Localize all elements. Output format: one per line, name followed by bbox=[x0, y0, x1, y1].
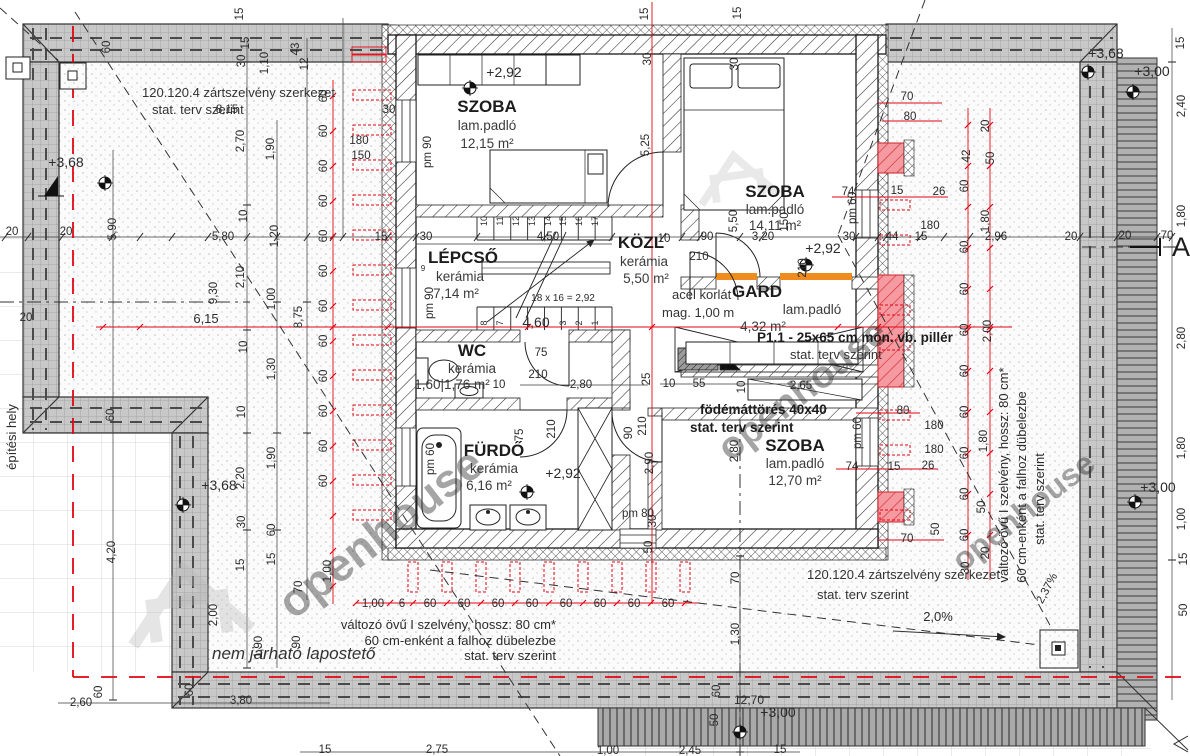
dim-label: 60 bbox=[318, 90, 330, 103]
dim-label: 60 bbox=[628, 598, 641, 610]
dim-label: 210 bbox=[546, 419, 558, 438]
dim-label: 60 bbox=[560, 598, 573, 610]
dim-label: 15 bbox=[558, 216, 568, 226]
dim-label: 10 bbox=[658, 233, 671, 245]
dim-label: 80 bbox=[904, 111, 917, 123]
dim-label: 60 bbox=[105, 409, 117, 422]
dim-label: 150 bbox=[351, 150, 370, 162]
dim-label: 60 bbox=[318, 265, 330, 278]
dim-label: 15 bbox=[891, 185, 904, 197]
pillar-top bbox=[878, 143, 904, 173]
dim-label: 20 bbox=[1119, 230, 1132, 242]
dim-label: 2,00 bbox=[208, 604, 220, 626]
dim-label: 3,20 bbox=[752, 231, 774, 243]
dim-label: 15 bbox=[732, 7, 744, 20]
section-box bbox=[6, 57, 30, 79]
dim-label: 1,80 bbox=[978, 430, 990, 452]
dim-label: 15 bbox=[1178, 553, 1190, 566]
dim-label: 60 bbox=[959, 365, 971, 378]
dim-label: 80 bbox=[897, 405, 910, 417]
dim-label: 180 bbox=[924, 444, 943, 456]
channel-strip-bottom bbox=[598, 708, 1145, 746]
note-slab-opening-2: stat. terv szerint bbox=[690, 420, 794, 435]
room-name-wc: WC bbox=[458, 341, 486, 360]
dim-label: 5,50 bbox=[728, 210, 740, 232]
dim-label: 60 bbox=[318, 475, 330, 488]
dim-label: 60 bbox=[184, 684, 196, 697]
dim-label: 3,80 bbox=[230, 695, 252, 707]
dim-label: 9,30 bbox=[208, 282, 220, 304]
dim-label: 1,00 bbox=[362, 598, 384, 610]
room-area-furdo: 6,16 m² bbox=[466, 478, 512, 493]
room-floor-gard: lam.padló bbox=[783, 302, 842, 317]
dim-label: 30 bbox=[236, 55, 248, 68]
dim-label: +2,92 bbox=[805, 240, 841, 256]
dim-label: 70 bbox=[1161, 230, 1174, 242]
tile-strip-left bbox=[0, 230, 23, 433]
gravel-strip-right bbox=[1117, 58, 1157, 720]
dim-label: 18 x 16 = 2,92 bbox=[531, 293, 595, 304]
dim-label: 8,75 bbox=[293, 306, 305, 328]
dim-label: 10 bbox=[736, 381, 748, 394]
dim-label: 10 bbox=[663, 378, 676, 390]
note-pillar-2: stat. terv szerint bbox=[790, 347, 882, 362]
dim-label: 60 bbox=[959, 241, 971, 254]
dim-label: 60 bbox=[318, 440, 330, 453]
dim-label: 42 bbox=[961, 150, 973, 163]
dim-label: 30 bbox=[960, 562, 972, 575]
dim-label: 1,00 bbox=[266, 288, 278, 310]
dim-label: 2,65 bbox=[790, 380, 812, 392]
dim-label: 60 bbox=[959, 447, 971, 460]
dim-label: 2,45 bbox=[679, 745, 701, 756]
dim-label: 50 bbox=[985, 152, 997, 165]
room-area-kozl: 5,50 m² bbox=[623, 271, 669, 286]
dim-label: 75 bbox=[514, 429, 526, 442]
dim-label: 5,90 bbox=[107, 218, 119, 240]
dim-label: 90 bbox=[291, 636, 303, 649]
dim-label: 11 bbox=[495, 216, 505, 225]
note-isection-right-2: 60 cm-enként a falhoz dübelezbe bbox=[1014, 391, 1029, 583]
dim-label: 210 bbox=[689, 251, 708, 263]
dim-label: 7 bbox=[495, 320, 505, 325]
dim-label: 60 bbox=[662, 598, 675, 610]
dim-label: 20 bbox=[980, 120, 992, 133]
room-name-lepcso: LÉPCSŐ bbox=[428, 248, 498, 267]
dim-label: 60 bbox=[424, 598, 437, 610]
dim-label: 30 bbox=[420, 231, 433, 243]
dim-label: 1,30 bbox=[730, 623, 742, 645]
dim-label: 60 bbox=[594, 598, 607, 610]
dim-label: 90 bbox=[623, 427, 635, 440]
dim-label: 1,80 bbox=[1176, 205, 1188, 227]
room-name-szoba1: SZOBA bbox=[457, 97, 517, 116]
dim-label: 3 bbox=[558, 320, 568, 325]
dim-label: 60 bbox=[318, 335, 330, 348]
dim-label: 4,50 bbox=[537, 231, 559, 243]
dim-label: 2,00 bbox=[982, 320, 994, 342]
dim-label: 60 bbox=[318, 160, 330, 173]
dim-label: 2 bbox=[574, 320, 584, 325]
room-floor-wc: kerámia bbox=[448, 361, 497, 376]
dim-label: 180 bbox=[349, 135, 368, 147]
dim-label: 2,70 bbox=[235, 130, 247, 152]
dim-label: 20 bbox=[20, 312, 33, 324]
dim-label: 180 bbox=[924, 420, 943, 432]
room-name-gard: GARD bbox=[732, 282, 782, 301]
dim-label: 43 bbox=[290, 43, 302, 56]
note-isection-bottom-1: változó övű I szelvény, hossz: 80 cm* bbox=[341, 617, 556, 632]
room-name-szoba3: SZOBA bbox=[765, 436, 825, 455]
dim-label: 6,15 bbox=[193, 311, 218, 326]
dim-label: 90 bbox=[701, 231, 714, 243]
dim-label: 60 bbox=[318, 125, 330, 138]
dim-label: 26 bbox=[933, 186, 946, 198]
dim-label: 5,25 bbox=[640, 134, 652, 156]
dim-label: 10 bbox=[238, 341, 250, 354]
dim-label: 2,80 bbox=[1176, 327, 1188, 349]
dim-label: 210 bbox=[637, 416, 649, 435]
dim-label: 30 bbox=[236, 516, 248, 529]
dim-label: 30 bbox=[642, 53, 654, 66]
dim-label: 1 bbox=[590, 320, 600, 325]
window-szoba1 bbox=[396, 100, 416, 162]
dim-label: 70 bbox=[293, 581, 305, 594]
note-frame-bottom-2: stat. terv szerint bbox=[817, 587, 909, 602]
dim-label: 1,20 bbox=[269, 225, 281, 247]
dim-label: 15 bbox=[774, 744, 787, 756]
dim-label: 8 bbox=[479, 320, 489, 325]
dim-label: 12 bbox=[299, 58, 311, 71]
dim-label: 30 bbox=[383, 104, 396, 116]
dim-label: 210 bbox=[797, 258, 809, 277]
note-railing-1: acél korlát bbox=[672, 287, 732, 302]
room-area-wc: 1,60|1,76 m² bbox=[414, 377, 490, 392]
dim-label: 70 bbox=[730, 572, 742, 585]
dim-label: 6 bbox=[399, 598, 405, 610]
dim-label: 2,0% bbox=[923, 609, 953, 624]
dim-label: 74 bbox=[842, 186, 855, 198]
note-isection-bottom-3: stat. terv szerint bbox=[464, 648, 556, 663]
dim-label: pm 90 bbox=[424, 287, 436, 319]
dim-label: +3,00 bbox=[1134, 63, 1170, 79]
dim-label: 1,30 bbox=[266, 358, 278, 380]
room-area-szoba1: 12,15 m² bbox=[460, 136, 514, 151]
dim-label: 50 bbox=[930, 523, 942, 536]
floor-plan-drawing: openhouse openhouse openhouse SZOBA lam.… bbox=[0, 0, 1190, 756]
dim-label: 4,20 bbox=[106, 541, 118, 563]
dim-label: 44 bbox=[886, 231, 899, 243]
floor-plan-page: openhouse openhouse openhouse SZOBA lam.… bbox=[0, 0, 1190, 756]
dim-label: 60 bbox=[318, 300, 330, 313]
dim-label: 10 bbox=[493, 379, 506, 391]
dim-label: +3,68 bbox=[48, 154, 84, 170]
dim-label: 2,20 bbox=[235, 467, 247, 489]
dim-label: pm 90 bbox=[422, 136, 434, 168]
dim-label: 74 bbox=[846, 461, 859, 473]
dim-label: 50 bbox=[709, 714, 721, 727]
dim-label: 12 bbox=[511, 216, 521, 226]
dim-label: 1,00 bbox=[597, 745, 619, 756]
dim-label: 60 bbox=[959, 406, 971, 419]
wall-right bbox=[856, 35, 878, 548]
dim-label: 1,00 bbox=[1176, 508, 1188, 530]
dim-label: 1,90 bbox=[266, 447, 278, 469]
dim-label: 150 bbox=[779, 212, 791, 231]
dim-label: 20 bbox=[1065, 231, 1078, 243]
threshold-2 bbox=[780, 273, 852, 280]
dim-label: 60 bbox=[318, 405, 330, 418]
dim-label: 2,60 bbox=[70, 697, 92, 709]
dim-label: 30 bbox=[843, 231, 856, 243]
dim-label: 15 bbox=[235, 559, 247, 572]
dim-label: +2,92 bbox=[486, 64, 522, 80]
dim-label: +3,68 bbox=[201, 477, 237, 493]
insulation-top bbox=[388, 25, 886, 35]
dim-label: 210 bbox=[528, 369, 547, 381]
dim-label: 60 bbox=[492, 598, 505, 610]
dim-label: 1,80 bbox=[1176, 437, 1188, 459]
note-slab-opening-1: födémáttörés 40x40 bbox=[700, 402, 827, 417]
dim-label: +3,68 bbox=[1088, 45, 1124, 61]
dim-label: 4,60 bbox=[522, 314, 549, 330]
room-floor-szoba3: lam.padló bbox=[766, 456, 825, 471]
room-name-furdo: FÜRDŐ bbox=[464, 441, 524, 460]
dim-label: 1,90 bbox=[265, 138, 277, 160]
drain-box-bottom-right bbox=[1040, 630, 1078, 668]
dim-label: 70 bbox=[901, 91, 914, 103]
dim-label: 60 bbox=[266, 524, 278, 537]
room-floor-kozl: kerámia bbox=[620, 254, 669, 269]
dim-label: 2,80 bbox=[729, 440, 741, 462]
dim-label: 60 bbox=[93, 686, 105, 699]
dim-label: 1,80 bbox=[980, 210, 992, 232]
drain-box-top-left bbox=[60, 63, 86, 89]
dim-label: 30 bbox=[729, 58, 741, 71]
room-name-szoba2: SZOBA bbox=[745, 182, 805, 201]
dim-label: 180 bbox=[920, 220, 939, 232]
dim-label: 2,40 bbox=[1176, 95, 1188, 117]
dim-label: 1,10 bbox=[259, 52, 271, 74]
dim-label: 60 bbox=[959, 488, 971, 501]
dim-label: 60 bbox=[318, 230, 330, 243]
dim-label: +3,00 bbox=[760, 704, 796, 720]
insulation-bottom bbox=[388, 548, 886, 560]
dim-label: 1,90 bbox=[253, 636, 265, 658]
room-floor-szoba1: lam.padló bbox=[458, 118, 517, 133]
dim-label: 15 bbox=[240, 37, 252, 50]
dim-label: 60 bbox=[959, 529, 971, 542]
dim-label: 55 bbox=[693, 378, 706, 390]
dim-label: 25 bbox=[641, 373, 653, 386]
dim-label: 10 bbox=[479, 216, 489, 226]
dim-label: 15 bbox=[234, 8, 246, 21]
dim-label: pm 80 bbox=[622, 508, 654, 520]
room-floor-furdo: kerámia bbox=[470, 461, 519, 476]
dim-label: 60 bbox=[318, 370, 330, 383]
dim-label: 2,10 bbox=[235, 266, 247, 288]
dim-label: 60 bbox=[101, 41, 113, 54]
note-isection-bottom-2: 60 cm-enként a falhoz dübelezbe bbox=[364, 633, 556, 648]
dim-label: 75 bbox=[535, 347, 548, 359]
note-railing-2: mag. 1,00 m bbox=[662, 305, 734, 320]
dim-label: 20 bbox=[980, 547, 992, 560]
dim-label: 60 bbox=[318, 195, 330, 208]
dim-label: 10 bbox=[238, 210, 250, 223]
dim-label: 15 bbox=[266, 553, 278, 566]
dim-label: 17 bbox=[590, 216, 600, 226]
dim-label: pm 60 bbox=[425, 443, 437, 475]
window-lepcso bbox=[396, 268, 416, 328]
dim-label: 60 bbox=[959, 283, 971, 296]
dim-label: 8,15 bbox=[216, 104, 238, 116]
note-pillar-1: P1.1 - 25x65 cm mon. vb. pillér bbox=[757, 330, 954, 345]
dim-label: 20 bbox=[60, 226, 73, 238]
dim-label: 15 bbox=[319, 744, 332, 756]
dim-label: 15 bbox=[375, 231, 388, 243]
dim-label: +3,00 bbox=[1140, 479, 1176, 495]
thresholds bbox=[716, 273, 852, 280]
pillar-bottom bbox=[878, 492, 904, 522]
dim-label: 20 bbox=[6, 226, 19, 238]
dim-label: 14 bbox=[543, 216, 553, 226]
threshold-1 bbox=[716, 273, 757, 280]
dim-label: 2,90 bbox=[644, 452, 656, 474]
dim-label: 60 bbox=[959, 324, 971, 337]
shaft bbox=[578, 408, 612, 530]
dim-label: 50 bbox=[1178, 604, 1190, 617]
section-mark-letter: A bbox=[1172, 232, 1190, 262]
note-frame-top-1: 120.120.4 zártszelvény szerkezet bbox=[142, 85, 335, 100]
dim-label: 60 bbox=[458, 598, 471, 610]
dim-label: 60 bbox=[711, 685, 723, 698]
dim-label: 2,80 bbox=[570, 379, 592, 391]
dim-label: 9 bbox=[421, 264, 426, 273]
dim-label: 15 bbox=[1175, 37, 1187, 50]
dim-label: 16 bbox=[574, 216, 584, 226]
dim-label: 13 bbox=[527, 216, 537, 226]
room-area-lepcso: 7,14 m² bbox=[433, 286, 479, 301]
note-isection-right-3: stat. terv szerint bbox=[1032, 453, 1047, 545]
dim-label: 60 bbox=[959, 180, 971, 193]
dim-label: 50 bbox=[976, 501, 988, 514]
dim-label: 15 bbox=[915, 231, 928, 243]
dim-label: 70 bbox=[901, 533, 914, 545]
room-floor-lepcso: kerámia bbox=[436, 269, 485, 284]
room-floor-szoba2: lam.padló bbox=[746, 202, 805, 217]
bed-single bbox=[490, 150, 607, 203]
dim-label: 26 bbox=[922, 460, 935, 472]
dim-label: 2,75 bbox=[426, 744, 448, 756]
note-isection-right-1: változó övű I szelvény, hossz: 80 cm* bbox=[996, 367, 1011, 582]
dim-label: 60 bbox=[526, 598, 539, 610]
dim-label: 15 bbox=[639, 8, 651, 21]
note-site-boundary: építési hely bbox=[4, 404, 19, 470]
dim-label: 10 bbox=[236, 406, 248, 419]
dim-label: 5,80 bbox=[212, 231, 234, 243]
dim-label: +2,92 bbox=[545, 465, 581, 481]
dim-label: 50 bbox=[643, 541, 655, 554]
dim-label: 1,00 bbox=[322, 560, 334, 582]
dim-label: pm 60 bbox=[852, 417, 864, 449]
room-area-szoba3: 12,70 m² bbox=[768, 473, 822, 488]
dim-label: 15 bbox=[888, 461, 901, 473]
wall-top bbox=[388, 35, 886, 54]
